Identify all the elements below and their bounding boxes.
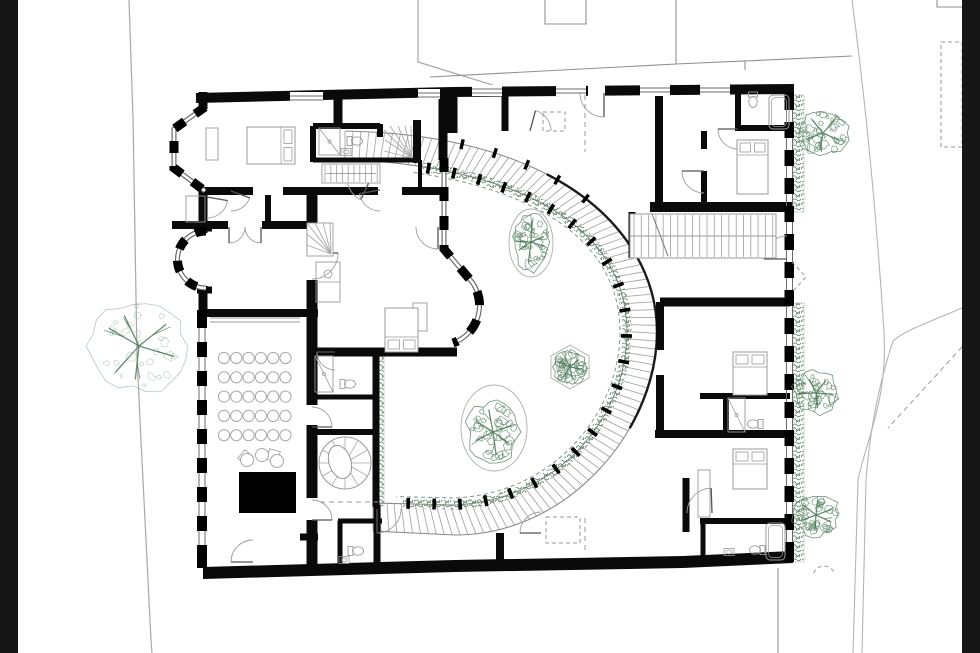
bed (733, 449, 767, 489)
tree-branch-twig (565, 361, 567, 362)
lounge-chair (256, 449, 269, 462)
pier-block (785, 262, 795, 278)
pier-block (785, 318, 795, 334)
bed (733, 352, 767, 395)
wall-segment (452, 89, 794, 92)
pier-block (785, 178, 795, 194)
pier-block (197, 487, 207, 502)
pier-block (785, 290, 795, 306)
wall-segment (196, 92, 452, 98)
walkway-post (461, 139, 463, 149)
walkway-post (453, 168, 455, 179)
walkway-post (619, 309, 630, 311)
pier-block (197, 342, 207, 357)
bed (737, 140, 768, 194)
pier-block (785, 206, 795, 222)
stage-block (239, 472, 296, 513)
pier-block (197, 458, 207, 473)
pier-cap (197, 550, 207, 568)
pier-cap (197, 310, 207, 326)
letterbox-left-bar (0, 0, 18, 653)
pier-block (197, 400, 207, 415)
letterbox-right-bar (962, 0, 980, 653)
pier-block (197, 516, 207, 531)
door-leaf (711, 488, 712, 513)
pier-block (785, 486, 795, 502)
floor-plan-stage (0, 0, 980, 653)
floor-plan-svg (0, 0, 980, 653)
window-opening (640, 85, 670, 96)
lounge-chair (241, 454, 254, 467)
window-opening (700, 84, 730, 95)
window-opening (588, 85, 605, 96)
window-opening (472, 85, 502, 96)
pier-block (197, 429, 207, 444)
window-opening (290, 92, 323, 103)
paper (18, 0, 962, 653)
paper-layer (18, 0, 962, 653)
bed (385, 308, 418, 352)
pier-block (785, 430, 795, 446)
pier-cap (785, 544, 795, 562)
walkway-post (618, 361, 629, 363)
pier-block (785, 458, 795, 474)
bed (247, 127, 295, 164)
window-opening (556, 85, 586, 96)
walkway-post (485, 495, 487, 506)
lounge-chair (271, 455, 284, 468)
pier-block (785, 346, 795, 362)
planting-strip (793, 95, 804, 212)
walkway-post (460, 499, 461, 510)
walkway-post (427, 163, 429, 174)
pier-block (785, 402, 795, 418)
pier-block (785, 150, 795, 166)
pier-block (197, 371, 207, 386)
